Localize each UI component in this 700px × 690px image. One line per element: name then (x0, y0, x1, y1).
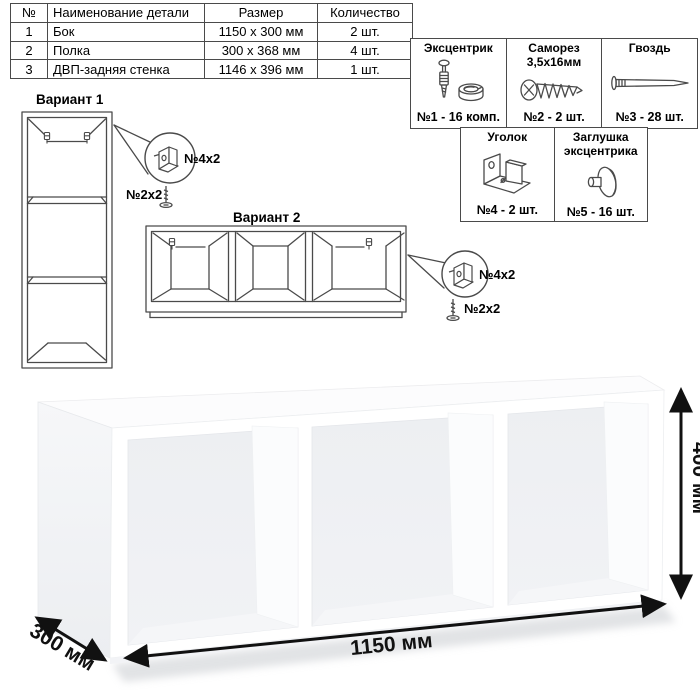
screw-icon (447, 299, 459, 320)
variant1-screw-label: №2x2 (126, 187, 162, 202)
variant2-diagram: Вариант 2 (146, 210, 515, 320)
variant1-cabinet-drawing (22, 112, 112, 368)
compartment-opening (508, 402, 648, 605)
variant1-title: Вариант 1 (36, 92, 104, 107)
variant1-bracket-label: №4x2 (184, 151, 220, 166)
compartment-opening (312, 413, 493, 626)
assembly-instruction-sheet: № Наименование детали Размер Количество … (0, 0, 700, 690)
variant1-callout: №4x2 №2x2 (114, 125, 220, 207)
compartment-opening (128, 426, 298, 645)
wall-clip-icon (169, 239, 174, 250)
height-dimension-label: 400 мм (688, 442, 700, 514)
variant2-title: Вариант 2 (233, 210, 300, 225)
wall-clip-icon (366, 239, 371, 250)
cabinet-left-panel (38, 402, 112, 658)
variant2-screw-label: №2x2 (464, 301, 500, 316)
variant2-callout: №4x2 №2x2 (408, 251, 515, 320)
variant1-diagram: Вариант 1 (22, 92, 220, 368)
variant2-bracket-label: №4x2 (479, 267, 515, 282)
drawings-canvas: Вариант 1 (0, 0, 700, 690)
